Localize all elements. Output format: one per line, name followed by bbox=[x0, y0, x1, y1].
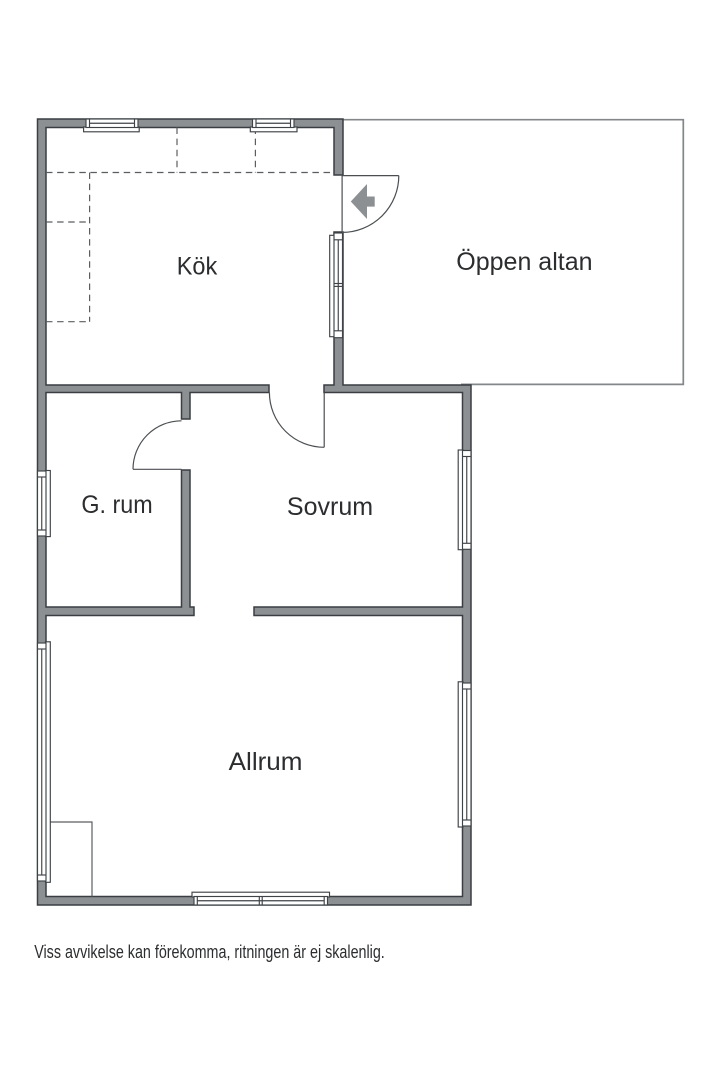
svg-text:Viss avvikelse kan förekomma,: Viss avvikelse kan förekomma, ritningen … bbox=[34, 942, 385, 962]
svg-text:Kök: Kök bbox=[177, 252, 218, 280]
svg-text:Allrum: Allrum bbox=[229, 748, 303, 776]
svg-text:Öppen altan: Öppen altan bbox=[456, 248, 592, 276]
svg-text:Sovrum: Sovrum bbox=[287, 493, 373, 521]
svg-text:G. rum: G. rum bbox=[81, 491, 152, 519]
